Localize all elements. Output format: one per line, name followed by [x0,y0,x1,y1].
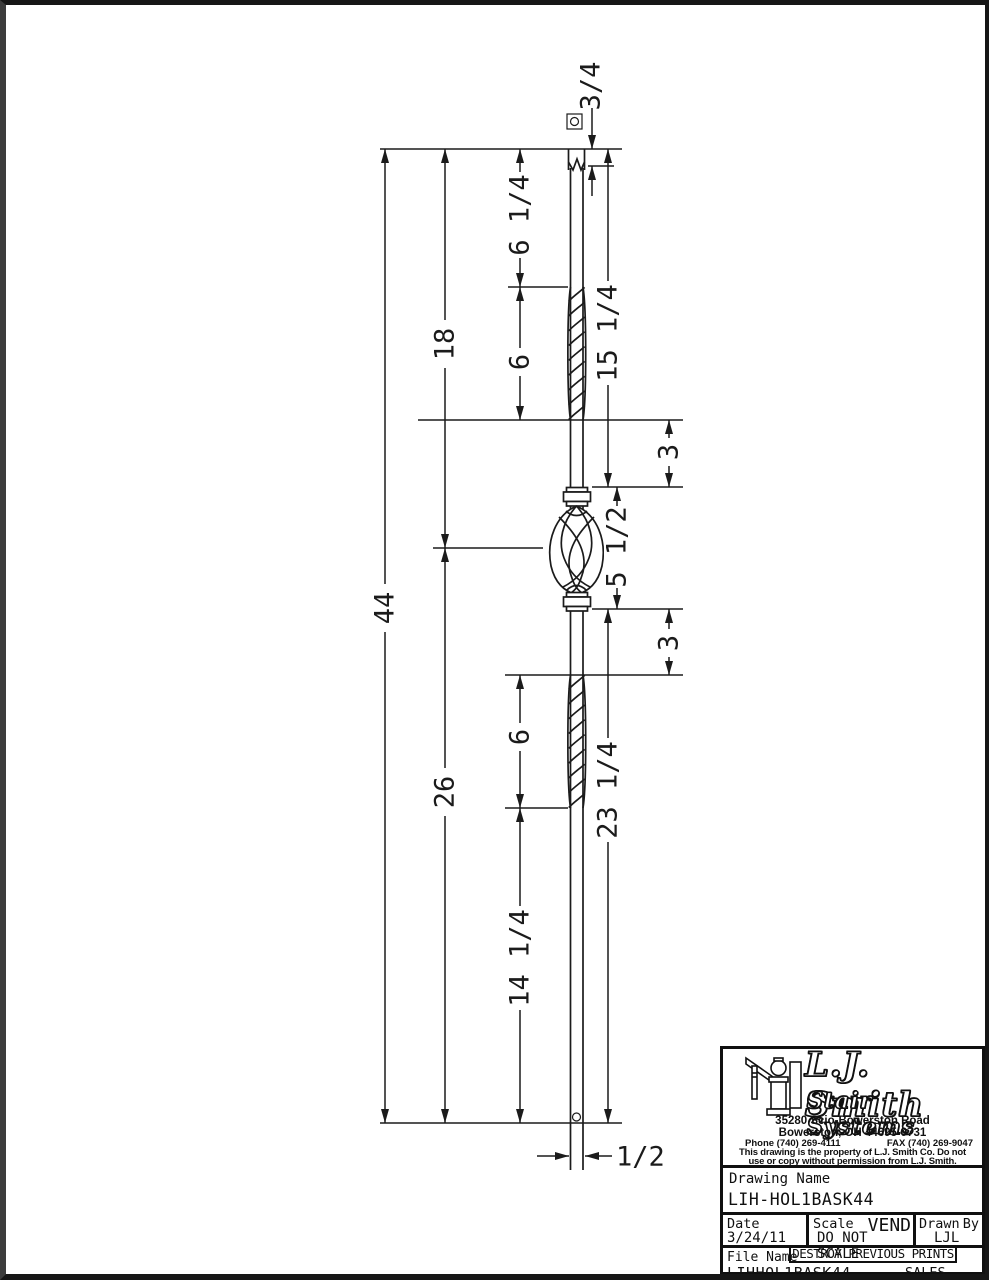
file-name-label: File Name [727,1250,797,1265]
dim-label-3-4: 3/4 [576,62,607,111]
dim-label-5-1-2: 5 1/2 [602,506,633,587]
basket-bottom-collar [564,593,591,612]
company-address-line1: 35280 Scio-Bowerston Road [723,1115,982,1127]
scale-cell: Scale VEND DO NOT SCALE [809,1215,916,1245]
drawn-by-value: LJL [934,1230,959,1246]
date-cell: Date 3/24/11 [723,1215,809,1245]
destroy-previous-prints-stamp: DESTROY PREVIOUS PRINTS [789,1246,957,1263]
dimension-labels: 44 18 26 6 1/4 6 6 14 1/4 15 1/4 23 1/4 … [370,62,685,1173]
drawing-sheet: 44 18 26 6 1/4 6 6 14 1/4 15 1/4 23 1/4 … [0,0,989,1280]
dim-label-6-upper: 6 [505,354,536,370]
basket-top-collar [564,488,591,507]
meta-row: Date 3/24/11 Scale VEND DO NOT SCALE Dra… [723,1215,982,1248]
cross-section-symbol [567,114,582,129]
dim-label-6-1-4: 6 1/4 [505,174,536,255]
drawn-by-label-word2: By [963,1216,979,1232]
drawing-name-value: LIH-HOL1BASK44 [728,1190,874,1209]
dim-label-44: 44 [370,592,401,625]
title-block: L.J. Smith Stair Systems 35280 Scio-Bowe… [720,1046,985,1275]
drawing-name-label: Drawing Name [729,1171,830,1187]
stair-newel-logo-icon [745,1053,803,1117]
department-value: SALES [905,1265,946,1280]
drawn-by-cell: Drawn By LJL [916,1215,982,1245]
baluster [550,114,604,1170]
dim-label-15-1-4: 15 1/4 [593,284,624,382]
dim-label-26: 26 [430,776,461,809]
dim-label-3-upper: 3 [654,444,685,460]
basket-detail [550,488,604,612]
dim-label-18: 18 [430,328,461,361]
company-panel: L.J. Smith Stair Systems 35280 Scio-Bowe… [723,1049,982,1168]
dim-label-1-2: 1/2 [616,1142,665,1173]
bottom-pin-hole [573,1113,581,1121]
file-name-value: LIHHOL1BASK44 [727,1264,851,1280]
dim-label-14-1-4: 14 1/4 [505,909,536,1007]
basket-hull [550,506,604,595]
dim-label-6-lower: 6 [505,729,536,745]
dim-label-3-lower: 3 [654,635,685,651]
drawing-name-panel: Drawing Name LIH-HOL1BASK44 [723,1168,982,1215]
dim-label-23-1-4: 23 1/4 [593,741,624,839]
date-value: 3/24/11 [727,1230,786,1246]
square-top-section [569,149,585,170]
property-notice-line2: use or copy without permission from L.J.… [723,1156,982,1167]
